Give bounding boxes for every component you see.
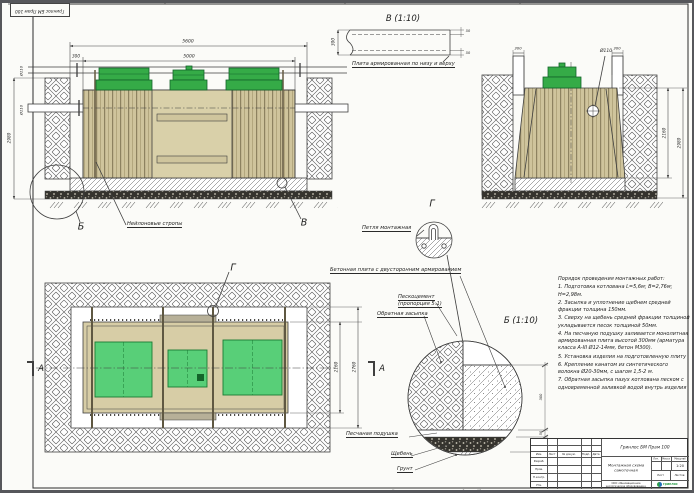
tb-sheet: Лист (657, 473, 664, 477)
drawing-sheet: Гринлос БМ Прам 100 5600 5000 300 2980 Ø… (0, 0, 694, 493)
dim-v-thickness: 300 (331, 38, 336, 46)
corner-stamp: Гринлос БМ Прам 100 (10, 3, 70, 17)
plan-callout-g: Г (230, 263, 235, 274)
dim-plan-tank-width: 2160 (334, 362, 339, 373)
dim-front-overall: 5600 (182, 40, 193, 45)
note-item: 6. Крепление канатом из синтетического в… (558, 362, 690, 377)
dim-front-offset: 300 (72, 54, 80, 59)
section-a-right: А (379, 364, 385, 374)
tb-scale: 1:20 (676, 464, 684, 468)
tb-row-utv: Утв. (536, 483, 542, 487)
gravel-layer (482, 191, 657, 199)
label-soil: Грунт (397, 466, 413, 473)
label-gravel: Щебень (391, 451, 413, 458)
dim-pipe-upper: Ø110 (19, 66, 24, 76)
label-concrete-plate: Бетонная плита с двусторонним армировани… (330, 267, 461, 274)
front-view (14, 42, 348, 225)
notes-title: Порядок проведения монтажных работ: (558, 276, 690, 283)
backfill-hatch (405, 340, 463, 430)
dim-side-depth: 2980 (677, 138, 682, 149)
tb-product: Гринлос БМ Прам 100 (620, 445, 669, 450)
label-sandcement-1: Пескоцемент (398, 294, 435, 301)
title-block: Изм. Лист № докум. Подп. Дата Разраб. Пр… (530, 438, 688, 488)
soil-hatch (40, 199, 338, 211)
label-plate-v: Плита армированная по низу и верху (352, 61, 455, 68)
tb-col-podp: Подп. (582, 452, 590, 456)
window-edge-top (0, 0, 694, 3)
installation-notes: Порядок проведения монтажных работ: 1. П… (558, 276, 690, 393)
tb-sheets: Листов (674, 473, 684, 477)
tb-col-doc: № докум. (562, 452, 575, 456)
note-item: 1. Подготовка котлована L=5,6м; B=2,76м;… (558, 284, 690, 299)
label-mounting-loop: Петля монтажная (362, 225, 411, 232)
outlet-pipe (295, 104, 348, 112)
concrete-slab (70, 178, 307, 191)
dim-front-depth: 2980 (7, 133, 12, 144)
slab-hatch (463, 365, 525, 430)
note-item: 2. Засыпка и уплотнение щебнем средней ф… (558, 300, 690, 315)
tb-lit: Лит. (653, 457, 659, 460)
section-a-left: А (38, 364, 44, 374)
dim-side-gap-left: 300 (514, 46, 521, 51)
tb-col-data: Дата (593, 452, 600, 456)
dim-side-gap-right: 300 (613, 46, 620, 51)
dim-side-tank-height: 2160 (662, 128, 667, 139)
dim-plan-pit-width: 2760 (352, 362, 357, 373)
dim-v-cover-bottom: 50 (466, 51, 470, 55)
plan-view (27, 272, 374, 452)
dim-pipe-lower: Ø110 (19, 105, 24, 115)
logo-icon (657, 482, 662, 487)
tb-col-izm: Изм. (536, 452, 542, 456)
tb-masshtab: Масштаб (674, 457, 685, 460)
gravel-band (405, 437, 527, 452)
pit-wall-right (623, 75, 657, 195)
detail-g-view (414, 222, 463, 343)
pit-wall-left (45, 78, 70, 179)
callout-v: В (301, 218, 308, 229)
drawing-linework (0, 0, 694, 493)
dim-b-plate: 300 (539, 394, 543, 401)
label-sandcement-2: (пропорция 5:1) (398, 301, 442, 308)
tb-company: ООО «Инновационное экологическое оборудо… (603, 482, 650, 488)
tank-end (515, 88, 625, 178)
label-slings: Нейлоновые стропы (127, 221, 182, 228)
callout-b: Б (78, 222, 85, 233)
pit-wall-right (307, 78, 332, 179)
label-sand-bed: Песчаная подушка (346, 431, 398, 438)
pit-wall-left (482, 75, 513, 195)
note-item: 4. На песчаную подушку заливается моноли… (558, 331, 690, 353)
dim-side-pipe: Ø110 (600, 49, 612, 54)
tb-doc-title: Монтажная схема самотечная (603, 463, 649, 472)
tb-massa: Масса (662, 457, 670, 460)
detail-b-title: Б (1:10) (504, 316, 538, 326)
tb-row-razrab: Разраб. (534, 459, 545, 463)
green-lids (96, 66, 282, 90)
side-view (478, 50, 687, 211)
tb-row-nkontr: Н.контр. (533, 475, 545, 479)
dim-v-cover-top: 50 (466, 29, 470, 33)
note-item: 3. Сверху на щебень средней фракции толщ… (558, 315, 690, 330)
note-item: 5. Установка изделия на подготовленную п… (558, 354, 690, 361)
logo-text: гринлос (663, 482, 678, 486)
dim-front-tank: 5000 (183, 55, 194, 60)
detail-v-view (338, 27, 464, 62)
corner-stamp-text: Гринлос БМ Прам 100 (15, 8, 64, 13)
note-item: 7. Обратная засыпка пазух котлована песк… (558, 377, 690, 392)
green-lid (543, 63, 581, 88)
detail-v-title: В (1:10) (386, 14, 420, 24)
tb-col-list: Лист (549, 452, 556, 456)
window-edge-left (0, 0, 2, 493)
concrete-slab (515, 178, 625, 191)
detail-g-title: Г (429, 199, 434, 210)
tb-row-prov: Пров. (535, 467, 543, 471)
company-logo: гринлос (657, 482, 678, 487)
soil-hatch (478, 199, 663, 211)
inlet-pipe (28, 104, 83, 112)
label-backfill: Обратная засыпка (377, 311, 428, 318)
soil-band (405, 452, 527, 466)
dim-b-sand: 50 (539, 431, 543, 435)
